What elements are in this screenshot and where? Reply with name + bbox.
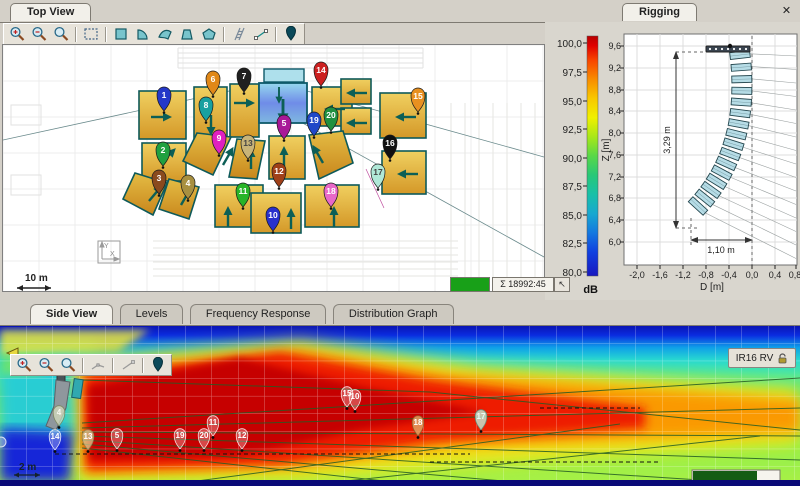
svg-text:8: 8: [204, 100, 209, 110]
tab-top-view-label: Top View: [27, 6, 74, 18]
rigging-panel: Rigging ✕: [600, 0, 800, 300]
db-color-scale: 100,0 97,5 95,0 92,5 90,0 87,5 85,0 82,5…: [545, 22, 600, 300]
toolbar-separator: [82, 358, 84, 373]
zoom-out-icon[interactable]: [35, 356, 57, 374]
svg-text:12: 12: [274, 166, 284, 176]
height-dimension-label: 3,29 m: [662, 126, 672, 154]
svg-text:85,0: 85,0: [563, 211, 583, 222]
svg-text:6,4: 6,4: [608, 215, 621, 225]
sum-field: Σ 18992:45: [492, 277, 554, 292]
area-rect-icon[interactable]: [110, 25, 132, 43]
zoom-in-icon[interactable]: [13, 356, 35, 374]
area-quarter-icon[interactable]: [132, 25, 154, 43]
svg-text:19: 19: [309, 115, 319, 125]
tab-side-view-label: Side View: [46, 308, 97, 320]
side-scale-label: 2 m: [19, 462, 36, 473]
svg-text:9: 9: [217, 133, 222, 143]
d-axis-label: D [m]: [700, 282, 724, 293]
svg-text:95,0: 95,0: [563, 97, 583, 108]
svg-text:8,4: 8,4: [608, 106, 621, 116]
svg-text:0,8: 0,8: [789, 270, 800, 280]
svg-text:18: 18: [326, 186, 336, 196]
bottom-panel: Side View Levels Frequency Response Dist…: [0, 300, 800, 486]
bottom-tabrow: Side View Levels Frequency Response Dist…: [0, 300, 800, 326]
svg-text:16: 16: [385, 138, 395, 148]
svg-text:15: 15: [413, 91, 423, 101]
tab-levels-label: Levels: [136, 308, 168, 320]
top-view-canvas[interactable]: Y X 10 m 1234567891011121314151617181920: [2, 44, 545, 292]
polyline-icon[interactable]: [87, 356, 109, 374]
z-axis-label: Z [m]: [601, 138, 612, 161]
toolbar-separator: [105, 27, 107, 42]
source-pin-icon[interactable]: [280, 25, 302, 43]
side-view-canvas[interactable]: 4141351920111215101817 2 m: [0, 326, 800, 486]
svg-text:97,5: 97,5: [563, 68, 583, 79]
plan-marker-14[interactable]: 14: [314, 62, 328, 89]
origin-x-label: X: [110, 251, 115, 258]
draw-line-icon[interactable]: [250, 25, 272, 43]
source-pin-icon[interactable]: [147, 356, 169, 374]
width-dimension-label: 1,10 m: [707, 245, 735, 255]
tab-side-view[interactable]: Side View: [30, 304, 113, 324]
array-label-button[interactable]: IR16 RV: [728, 348, 796, 368]
zoom-out-icon[interactable]: [28, 25, 50, 43]
svg-text:87,5: 87,5: [563, 182, 583, 193]
svg-text:9,2: 9,2: [608, 63, 621, 73]
bottom-strip: [0, 480, 800, 486]
svg-text:13: 13: [243, 138, 253, 148]
plan-scale-label: 10 m: [25, 273, 48, 284]
svg-text:2: 2: [161, 145, 166, 155]
svg-text:4: 4: [57, 408, 62, 417]
db-ticks: [583, 43, 587, 272]
svg-text:1: 1: [162, 90, 167, 100]
svg-text:0,4: 0,4: [769, 270, 782, 280]
db-unit-label: dB: [583, 284, 598, 296]
origin-axes: Y X: [98, 241, 120, 263]
svg-text:-1,2: -1,2: [675, 270, 691, 280]
svg-text:90,0: 90,0: [563, 154, 583, 165]
edge-marker: [0, 437, 6, 447]
plan-marker-20[interactable]: 20: [324, 107, 338, 134]
top-view-toolbar: [3, 23, 305, 45]
array-label: IR16 RV: [736, 353, 774, 364]
toolbar-separator: [223, 27, 225, 42]
tab-top-view[interactable]: Top View: [10, 3, 91, 21]
tab-rigging[interactable]: Rigging: [622, 3, 697, 21]
area-polygon-icon[interactable]: [198, 25, 220, 43]
zoom-in-icon[interactable]: [6, 25, 28, 43]
svg-text:3: 3: [157, 173, 162, 183]
rigging-chart[interactable]: 3,29 m 1,10 m 9,6 9,2 8,8 8,4 8,0 7,6 7,…: [600, 22, 800, 300]
svg-text:17: 17: [477, 412, 486, 421]
svg-text:5: 5: [282, 118, 287, 128]
tab-frequency-response-label: Frequency Response: [206, 308, 311, 320]
svg-text:7: 7: [242, 71, 247, 81]
svg-text:6: 6: [211, 74, 216, 84]
svg-text:11: 11: [209, 418, 218, 427]
zoom-window-icon[interactable]: [57, 356, 79, 374]
toolbar-separator: [275, 27, 277, 42]
side-view-toolbar: [10, 354, 172, 376]
plan-marker-12[interactable]: 12: [272, 163, 286, 190]
top-view-tabrow: Top View: [0, 0, 600, 23]
svg-text:19: 19: [176, 431, 185, 440]
svg-text:4: 4: [186, 178, 191, 188]
rigging-tabrow: Rigging ✕: [600, 0, 800, 23]
app-window: Top View: [0, 0, 800, 486]
svg-text:8,0: 8,0: [608, 128, 621, 138]
svg-text:100,0: 100,0: [557, 39, 582, 50]
svg-text:17: 17: [373, 167, 383, 177]
toolbar-separator: [112, 358, 114, 373]
svg-text:92,5: 92,5: [563, 125, 583, 136]
svg-text:7,2: 7,2: [608, 172, 621, 182]
svg-text:8,8: 8,8: [608, 85, 621, 95]
svg-text:9,6: 9,6: [608, 41, 621, 51]
svg-text:13: 13: [84, 432, 93, 441]
svg-text:-1,6: -1,6: [652, 270, 668, 280]
top-view-statusbar: Σ 18992:45 ↖: [450, 277, 570, 292]
svg-text:-2,0: -2,0: [629, 270, 645, 280]
svg-text:14: 14: [316, 65, 326, 75]
tab-distribution-graph-label: Distribution Graph: [349, 308, 438, 320]
svg-text:82,5: 82,5: [563, 239, 583, 250]
svg-text:10: 10: [268, 210, 278, 220]
toolbar-separator: [142, 358, 144, 373]
svg-text:20: 20: [326, 110, 336, 120]
lock-open-icon: [777, 353, 788, 364]
area-trapezoid-icon[interactable]: [176, 25, 198, 43]
draw-line-icon[interactable]: [117, 356, 139, 374]
svg-text:-0,4: -0,4: [721, 270, 737, 280]
svg-text:5: 5: [115, 431, 120, 440]
close-icon[interactable]: ✕: [779, 4, 794, 19]
tab-frequency-response[interactable]: Frequency Response: [190, 304, 327, 324]
calc-progress-bar: [450, 277, 490, 292]
svg-text:11: 11: [239, 186, 248, 196]
origin-y-label: Y: [104, 243, 109, 250]
svg-text:6,0: 6,0: [608, 237, 621, 247]
select-area-icon[interactable]: [80, 25, 102, 43]
top-view-panel: Top View: [0, 0, 600, 300]
svg-text:-0,8: -0,8: [698, 270, 714, 280]
svg-text:20: 20: [200, 431, 209, 440]
area-curved-icon[interactable]: [154, 25, 176, 43]
svg-text:0,0: 0,0: [746, 270, 759, 280]
tab-levels[interactable]: Levels: [120, 304, 184, 324]
db-gradient-bar: [587, 36, 598, 276]
tab-rigging-label: Rigging: [639, 6, 680, 18]
svg-text:14: 14: [51, 432, 60, 441]
db-tick-labels: 100,0 97,5 95,0 92,5 90,0 87,5 85,0 82,5…: [557, 39, 582, 279]
svg-text:18: 18: [414, 418, 423, 427]
array-ladder-icon[interactable]: [228, 25, 250, 43]
plan-scale: 10 m: [17, 273, 51, 291]
svg-text:10: 10: [351, 392, 360, 401]
nw-arrow-icon[interactable]: ↖: [554, 277, 570, 292]
svg-text:12: 12: [238, 431, 247, 440]
zoom-window-icon[interactable]: [50, 25, 72, 43]
side-progress-bar: [692, 470, 780, 481]
svg-text:6,8: 6,8: [608, 193, 621, 203]
spl-heatmap: [0, 326, 800, 482]
toolbar-separator: [75, 27, 77, 42]
tab-distribution-graph[interactable]: Distribution Graph: [333, 304, 454, 324]
